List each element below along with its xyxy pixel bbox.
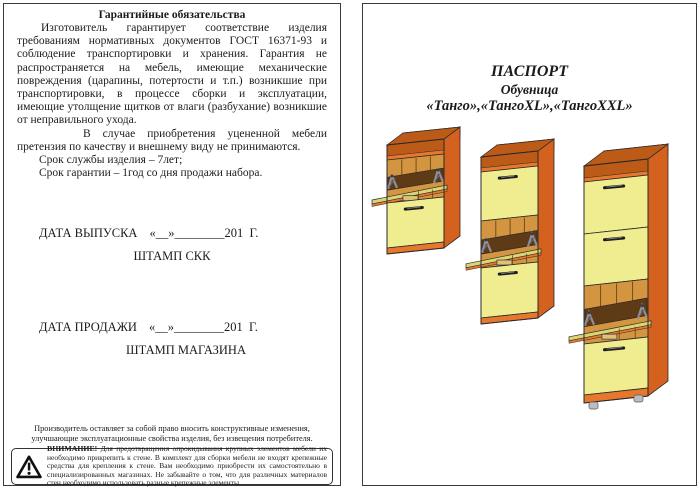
warning-triangle-icon <box>16 455 42 479</box>
date-issue-value: «__»________201 Г. <box>149 226 258 241</box>
manufacturer-note: Производитель оставляет за собой право в… <box>28 424 316 444</box>
passport-page: ПАСПОРТ Обувница «Танго»,«ТангоXL»,«Танг… <box>362 3 697 486</box>
warranty-paragraph-2: В случае приобретения уцененной мебели п… <box>17 128 327 154</box>
cabinet-tangoxxl-drawing <box>569 144 668 409</box>
stamp-skk-label: ШТАМП СКК <box>4 249 340 264</box>
warranty-term-line: Срок гарантии – 1год со дня продажи набо… <box>39 167 327 180</box>
warranty-page: Гарантийные обязательства Изготовитель г… <box>3 3 341 486</box>
warranty-title: Гарантийные обязательства <box>17 9 327 21</box>
date-sale-value: «__»________201 Г. <box>149 320 258 335</box>
service-life-line: Срок службы изделия – 7лет; <box>39 154 327 167</box>
date-issue-label: ДАТА ВЫПУСКА <box>39 226 137 241</box>
cabinet-tango-drawing <box>372 127 460 254</box>
stamp-shop-label: ШТАМП МАГАЗИНА <box>32 343 340 358</box>
cabinet-drawings <box>363 4 696 485</box>
date-of-issue-line: ДАТА ВЫПУСКА«__»________201 Г. <box>39 226 258 241</box>
warning-text: ВНИМАНИЕ! Для предотвращения опрокидыван… <box>47 445 327 488</box>
warranty-text-block: Гарантийные обязательства Изготовитель г… <box>4 4 340 180</box>
warning-box: ВНИМАНИЕ! Для предотвращения опрокидыван… <box>11 448 333 485</box>
warranty-paragraph-1: Изготовитель гарантирует соответствие из… <box>17 22 327 128</box>
date-of-sale-line: ДАТА ПРОДАЖИ«__»________201 Г. <box>39 320 258 335</box>
cabinet-tangoxl-drawing <box>466 139 554 324</box>
date-sale-label: ДАТА ПРОДАЖИ <box>39 320 137 335</box>
